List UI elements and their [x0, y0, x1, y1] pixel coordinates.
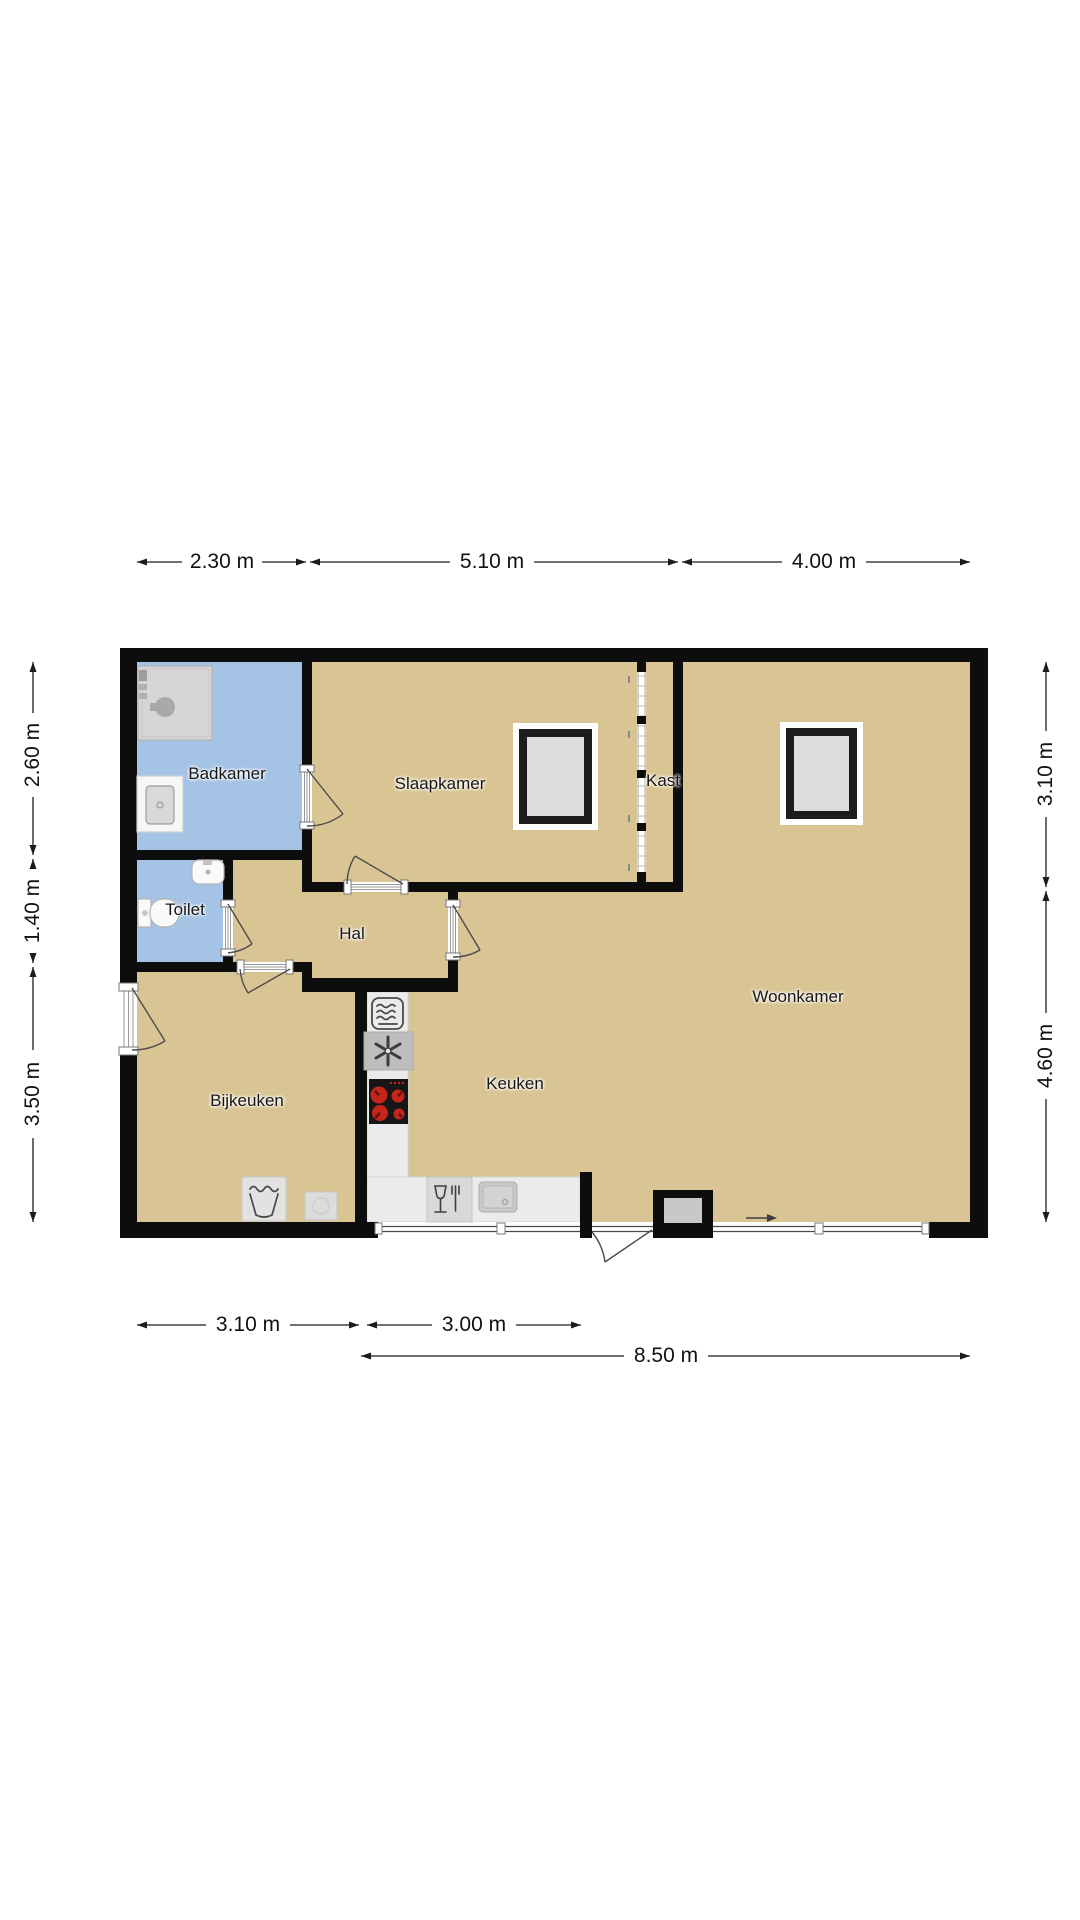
dim-top-1: 5.10 m: [456, 550, 528, 574]
dim-left-2: 3.50 m: [21, 1058, 45, 1130]
dim-bottom-inner-0: 3.10 m: [212, 1313, 284, 1337]
dim-left-1: 1.40 m: [21, 875, 45, 947]
dim-top-2: 4.00 m: [788, 550, 860, 574]
sliding-door-segment: [637, 716, 646, 724]
dishwasher-icon: [427, 1177, 472, 1222]
wall-bathroom-bottom: [137, 850, 302, 860]
wall-outer-left-lower: [120, 1052, 137, 1238]
wall-hall-bottom-left: [137, 962, 240, 972]
washing-machine-icon: [242, 1177, 286, 1221]
wall-outer-left-upper: [120, 648, 137, 986]
kitchen-sink-icon: [479, 1182, 517, 1212]
floor-plan-drawing: [0, 0, 1080, 1920]
room-label-woonkamer: Woonkamer: [752, 987, 843, 1007]
dim-bottom-inner-1: 3.00 m: [438, 1313, 510, 1337]
roof-window-icon: [780, 722, 863, 825]
room-label-toilet: Toilet: [165, 900, 205, 920]
dimension-bottom-inner: [137, 1322, 581, 1329]
kitchen-door-opening: [446, 900, 460, 960]
wall-outer-bottom-left: [120, 1222, 378, 1238]
toilet-door-opening: [221, 900, 235, 956]
wall-scullery-right: [355, 978, 367, 1222]
dim-right-1: 4.60 m: [1034, 1020, 1058, 1092]
washbasin-icon: [137, 776, 183, 832]
livingroom-window: [713, 1222, 929, 1238]
cooktop-icon: [369, 1079, 408, 1124]
extractor-fan-icon: [364, 1032, 413, 1070]
room-label-keuken: Keuken: [486, 1074, 544, 1094]
sliding-door-segment: [637, 823, 646, 831]
wall-outer-top: [120, 648, 988, 662]
wall-outer-right: [970, 648, 988, 1238]
wall-slide-cap-top: [637, 662, 646, 672]
shower-icon: [138, 666, 212, 740]
wall-outer-bottom-right: [929, 1222, 988, 1238]
room-label-hal: Hal: [339, 924, 365, 944]
hand-basin-icon: [192, 860, 224, 884]
room-label-bijkeuken: Bijkeuken: [210, 1091, 284, 1111]
wall-hall-bottom-band: [302, 978, 458, 992]
sliding-door-segment: [637, 770, 646, 778]
roof-window-icon: [513, 723, 598, 830]
entrance-block-inset: [664, 1198, 702, 1223]
room-label-badkamer: Badkamer: [188, 764, 265, 784]
wall-counter-end-post: [580, 1172, 592, 1238]
floor-plan: Badkamer Slaapkamer Kast Woonkamer Toile…: [0, 0, 1080, 1920]
boiler-icon: [305, 1192, 337, 1220]
dim-right-0: 3.10 m: [1034, 738, 1058, 810]
kitchen-window: [375, 1222, 580, 1238]
dim-bottom-outer-0: 8.50 m: [630, 1344, 702, 1368]
dim-top-0: 2.30 m: [186, 550, 258, 574]
counter-horizontal: [367, 1177, 580, 1222]
room-label-kast: Kast: [646, 771, 680, 791]
dim-left-0: 2.60 m: [21, 719, 45, 791]
room-label-slaapkamer: Slaapkamer: [395, 774, 486, 794]
wall-slide-cap-bottom: [637, 872, 646, 884]
